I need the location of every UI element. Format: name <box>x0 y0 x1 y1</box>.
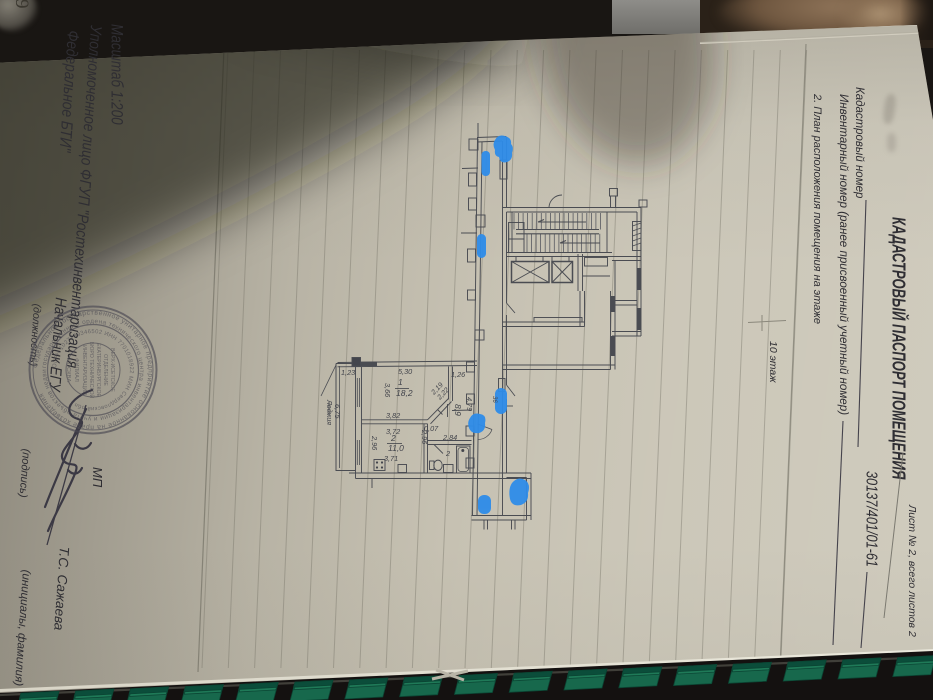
svg-text:МОСКВА: МОСКВА <box>65 358 71 383</box>
svg-text:ВЕРХ-ИСЕТСКОЕ: ВЕРХ-ИСЕТСКОЕ <box>109 348 115 392</box>
svg-text:1,23: 1,23 <box>341 368 355 377</box>
svg-text:ОТДЕЛЕНИЕ: ОТДЕЛЕНИЕ <box>102 354 108 386</box>
svg-text:2,96: 2,96 <box>370 435 379 451</box>
svg-text:2,96: 2,96 <box>420 429 429 445</box>
svg-text:2: 2 <box>390 433 396 443</box>
svg-text:ИНВЕНТАРИЗАЦИИ: ИНВЕНТАРИЗАЦИИ <box>81 345 87 395</box>
svg-text:5,30: 5,30 <box>398 367 412 376</box>
svg-text:8,9: 8,9 <box>453 404 463 416</box>
svg-text:2,84: 2,84 <box>442 433 457 442</box>
svg-text:ЕКАТЕРИНБУРГСКОЕ: ЕКАТЕРИНБУРГСКОЕ <box>95 343 101 397</box>
svg-text:4,79: 4,79 <box>465 397 474 411</box>
svg-text:ФИЛИАЛ: ФИЛИАЛ <box>73 358 79 382</box>
svg-text:3,71: 3,71 <box>384 454 398 463</box>
svg-text:2: 2 <box>445 449 450 458</box>
svg-text:36: 36 <box>491 396 497 403</box>
svg-text:18,2: 18,2 <box>396 388 413 398</box>
svg-text:11,0: 11,0 <box>388 443 404 453</box>
svg-text:3,82: 3,82 <box>386 411 400 420</box>
svg-text:государственного ордена технич: государственного ордена технического цен… <box>41 275 468 422</box>
svg-text:БЮРО ТЕХНИЧЕСКОЙ: БЮРО ТЕХНИЧЕСКОЙ <box>88 342 96 399</box>
svg-text:3,66: 3,66 <box>383 383 392 398</box>
svg-text:1,26: 1,26 <box>451 370 466 379</box>
svg-text:6,75: 6,75 <box>333 404 342 419</box>
svg-text:1: 1 <box>398 377 403 387</box>
